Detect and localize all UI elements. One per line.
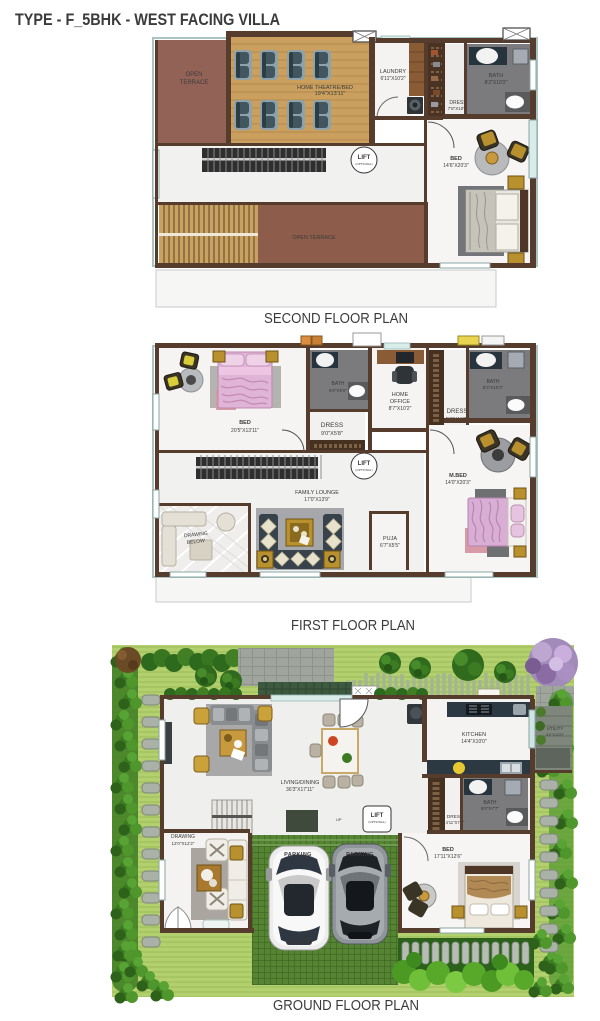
svg-text:14'0"X20'3": 14'0"X20'3" [445,480,471,486]
svg-text:FAMILY LOUNGE: FAMILY LOUNGE [295,490,339,496]
svg-text:BED: BED [239,420,251,426]
svg-text:8'2"X10'2": 8'2"X10'2" [485,80,508,86]
svg-text:DRAWING: DRAWING [171,834,195,840]
svg-text:KITCHEN: KITCHEN [462,732,486,738]
svg-text:TERRACE: TERRACE [180,80,209,86]
svg-text:LIFT: LIFT [358,461,371,467]
svg-text:6'7"X5'5": 6'7"X5'5" [380,543,400,549]
svg-text:FIRST FLOOR PLAN: FIRST FLOOR PLAN [291,618,415,634]
svg-text:12'0"X12'2": 12'0"X12'2" [172,841,195,846]
svg-text:14'6"X20'3": 14'6"X20'3" [443,163,469,169]
svg-text:4'0"X10'0": 4'0"X10'0" [546,732,565,737]
svg-text:UTILITY: UTILITY [547,726,564,731]
svg-text:OFFICE: OFFICE [390,399,410,405]
svg-text:PARKING: PARKING [284,852,312,858]
svg-text:GROUND FLOOR PLAN: GROUND FLOOR PLAN [273,998,419,1014]
svg-text:36'3"X17'11": 36'3"X17'11" [286,787,314,793]
svg-text:8'7"X10'2": 8'7"X10'2" [389,406,412,412]
svg-text:19'4"X13'11": 19'4"X13'11" [315,91,346,97]
svg-text:HOME: HOME [392,392,409,398]
svg-text:(OPTIONAL): (OPTIONAL) [355,468,372,472]
svg-text:20'5"X13'11": 20'5"X13'11" [231,428,259,434]
svg-text:OPEN TERRACE: OPEN TERRACE [292,235,336,241]
svg-text:TYPE - F_5BHK - WEST FACING V: TYPE - F_5BHK - WEST FACING VILLA [15,11,280,29]
svg-text:8'3"X10'2": 8'3"X10'2" [483,385,504,390]
svg-text:UP: UP [336,817,342,822]
svg-text:9'0"X7'7": 9'0"X7'7" [481,806,499,811]
svg-text:PARKING: PARKING [346,852,374,858]
svg-text:LAUNDRY: LAUNDRY [380,69,407,75]
svg-text:PUJA: PUJA [383,536,397,542]
svg-text:SECOND FLOOR PLAN: SECOND FLOOR PLAN [264,311,408,327]
svg-text:9'0"X5'8": 9'0"X5'8" [321,431,343,437]
svg-text:14'4"X10'0": 14'4"X10'0" [461,739,487,745]
svg-text:6'11"X10'2": 6'11"X10'2" [380,76,405,82]
svg-text:17'0"X13'9": 17'0"X13'9" [304,497,330,503]
svg-text:OPEN: OPEN [185,72,202,78]
svg-text:(OPTIONAL): (OPTIONAL) [368,820,385,824]
svg-text:BATH: BATH [489,73,503,79]
svg-text:M.BED: M.BED [449,473,467,479]
svg-text:DRESS: DRESS [447,409,468,415]
svg-text:BED: BED [442,847,454,853]
svg-text:DRESS: DRESS [321,422,344,429]
svg-text:LIVING/DINING: LIVING/DINING [281,780,320,786]
svg-text:LIFT: LIFT [371,813,384,819]
svg-text:LIFT: LIFT [358,155,371,161]
svg-text:BATH: BATH [332,381,345,387]
svg-text:9'0"X9'0": 9'0"X9'0" [329,388,347,393]
svg-text:(OPTIONAL): (OPTIONAL) [355,162,372,166]
svg-text:17'11"X12'6": 17'11"X12'6" [434,854,462,860]
svg-text:BED: BED [450,156,462,162]
